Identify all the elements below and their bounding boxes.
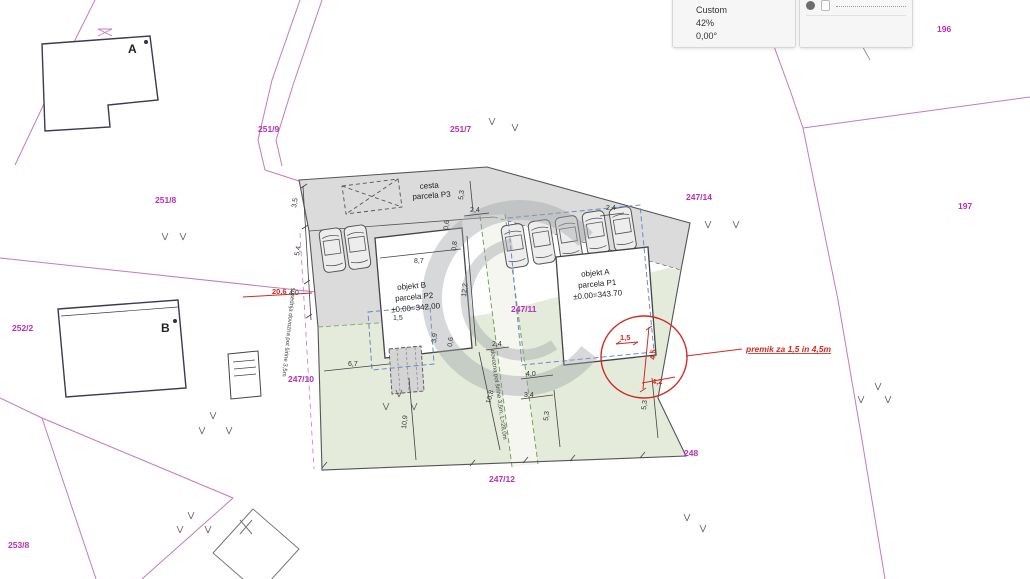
dim: 3,5 xyxy=(291,197,300,208)
dim: 2,4 xyxy=(492,341,502,348)
parcel-label: 248 xyxy=(684,448,698,458)
dim: 6,7 xyxy=(348,361,358,368)
dim: 2,4 xyxy=(470,207,480,214)
rotation-value: 0,00° xyxy=(696,31,717,41)
scale-value: Custom xyxy=(696,5,727,15)
road-label-line1: cesta xyxy=(419,180,439,190)
dim: 4,0 xyxy=(526,371,536,378)
objekt-b-annex xyxy=(389,346,424,394)
parcel-label: 252/2 xyxy=(12,323,34,333)
building-b-letter: B xyxy=(161,321,170,335)
left-road-note: sosednja dovozna pot širine 3,5m xyxy=(280,287,295,377)
magnifier-icon xyxy=(679,17,690,28)
dim: 4,0 xyxy=(289,290,299,297)
reference-color-dot[interactable] xyxy=(806,1,815,10)
dim: 5,3 xyxy=(543,411,551,422)
parcel-label: 196 xyxy=(937,24,951,34)
trace-reference-panel: ACTIVE: xyxy=(799,0,913,48)
dim: 3,9 xyxy=(431,333,439,344)
parcel-label: 247/11 xyxy=(511,304,537,314)
existing-shed xyxy=(228,351,261,399)
dim: 1,5 xyxy=(393,315,403,322)
red-dim: 1,5 xyxy=(620,333,630,342)
dim: 0,6 xyxy=(443,220,451,231)
dim: 5,3 xyxy=(458,190,466,201)
dim: 2,4 xyxy=(606,205,616,212)
opacity-slider-knob[interactable] xyxy=(821,0,830,11)
shift-annotation: premik za 1,5 in 4,5m xyxy=(745,344,831,354)
dim: 5,3 xyxy=(641,400,649,411)
red-dim: 4,5 xyxy=(648,349,658,360)
parcel-label: 251/9 xyxy=(258,124,280,134)
site-plan-canvas[interactable]: 251/9 251/7 251/8 247/14 197 196 252/2 2… xyxy=(0,0,1030,579)
existing-building-b xyxy=(58,300,186,397)
dim: 8,7 xyxy=(414,258,424,265)
zoom-option[interactable]: 42% xyxy=(679,16,789,29)
red-dim: 4,2 xyxy=(652,377,662,386)
dim: 10,9 xyxy=(401,415,409,429)
layout-icon xyxy=(679,4,690,15)
dim: 3,4 xyxy=(524,392,534,399)
dim: 0,8 xyxy=(451,241,459,252)
pen-set-icon xyxy=(679,0,690,2)
opacity-slider-track[interactable] xyxy=(836,5,906,7)
parcel-label: 247/14 xyxy=(686,192,712,202)
scale-option[interactable]: Custom xyxy=(679,3,789,16)
dim: 0,6 xyxy=(447,337,455,348)
crossed-out-building xyxy=(213,509,299,579)
tool-palette: Custom 42% 0,00° ACTIVE: xyxy=(672,0,913,48)
rotation-option[interactable]: 0,00° xyxy=(679,29,789,42)
zoom-value: 42% xyxy=(696,18,714,28)
parcel-label: 247/10 xyxy=(288,374,314,384)
parcel-label: 197 xyxy=(958,201,972,211)
quick-options-panel: Custom 42% 0,00° xyxy=(672,0,796,48)
parcel-label: 251/8 xyxy=(155,195,177,205)
parcel-label: 247/12 xyxy=(489,474,515,484)
parcel-label: 251/7 xyxy=(450,124,472,134)
angle-icon xyxy=(679,30,690,41)
building-a-letter: A xyxy=(128,42,137,56)
red-dim: 20,6 xyxy=(272,287,287,296)
dim: 12,2 xyxy=(461,283,469,297)
objekt-a-outline xyxy=(556,247,656,365)
cad-application-window: 251/9 251/7 251/8 247/14 197 196 252/2 2… xyxy=(0,0,1030,579)
existing-building-a xyxy=(42,36,158,131)
parcel-label: 253/8 xyxy=(8,540,30,550)
